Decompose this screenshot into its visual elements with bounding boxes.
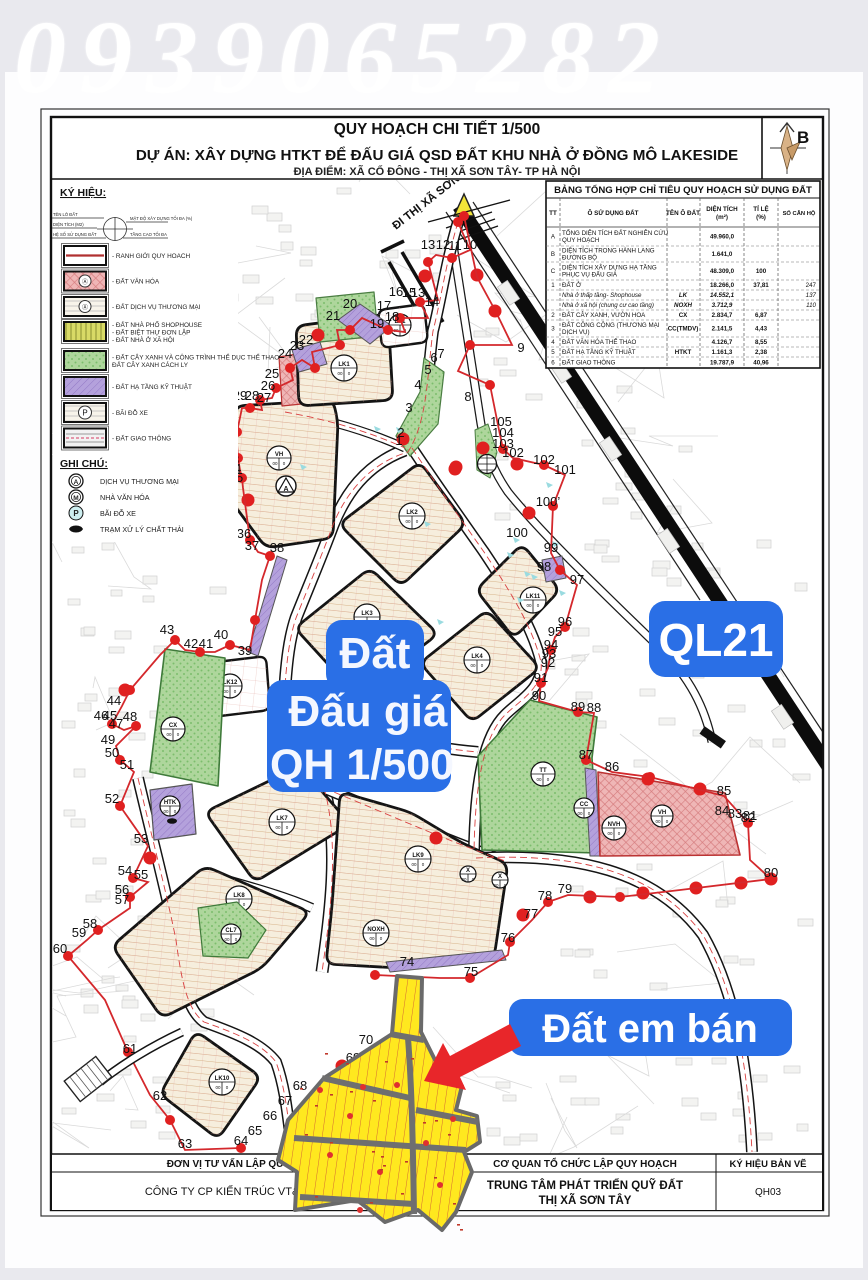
svg-text:42: 42 (184, 636, 198, 651)
svg-text:Nhà ở thấp tầng- Shophouse: Nhà ở thấp tầng- Shophouse (562, 292, 642, 299)
svg-text:00: 00 (224, 937, 230, 942)
svg-text:DIỆN TÍCH XÂY DỰNG HẠ TẦNG: DIỆN TÍCH XÂY DỰNG HẠ TẦNG (562, 264, 657, 272)
svg-text:00: 00 (215, 1085, 221, 1090)
svg-text:A: A (283, 486, 288, 493)
svg-text:CC: CC (580, 802, 589, 808)
svg-text:GHI CHÚ:: GHI CHÚ: (60, 457, 108, 470)
svg-text:90: 90 (532, 688, 546, 703)
svg-text:ĐẤT GIAO THÔNG: ĐẤT GIAO THÔNG (562, 360, 616, 367)
svg-text:99: 99 (544, 540, 558, 555)
svg-text:62: 62 (153, 1088, 167, 1103)
svg-text:SỐ CĂN HỘ: SỐ CĂN HỘ (783, 209, 816, 217)
svg-text:NHÀ VĂN HÓA: NHÀ VĂN HÓA (100, 493, 150, 502)
svg-text:84: 84 (715, 803, 729, 818)
svg-text:14: 14 (425, 294, 439, 309)
svg-text:3.712,9: 3.712,9 (712, 302, 733, 309)
svg-text:91: 91 (534, 670, 548, 685)
svg-text:DỊCH VỤ THƯƠNG MẠI: DỊCH VỤ THƯƠNG MẠI (100, 477, 179, 486)
svg-text:65: 65 (248, 1123, 262, 1138)
svg-text:BÃI ĐỖ XE: BÃI ĐỖ XE (100, 509, 136, 518)
svg-text:4: 4 (414, 377, 421, 392)
svg-text:16: 16 (389, 284, 403, 299)
svg-text:64: 64 (234, 1133, 248, 1148)
svg-text:X: X (498, 874, 502, 880)
svg-text:100’: 100’ (536, 494, 561, 509)
svg-text:41: 41 (199, 636, 213, 651)
svg-text:ĐẤT Ở: ĐẤT Ở (562, 282, 582, 289)
svg-text:00: 00 (163, 809, 169, 814)
svg-text:00: 00 (275, 825, 281, 830)
svg-text:14.552,1: 14.552,1 (710, 292, 735, 299)
svg-text:QH 1/500: QH 1/500 (270, 741, 454, 789)
svg-text:21: 21 (326, 308, 340, 323)
svg-text:ĐỊA ĐIỂM: XÃ CỔ ĐÔNG - THỊ XÃ: ĐỊA ĐIỂM: XÃ CỔ ĐÔNG - THỊ XÃ SƠN TÂY- T… (294, 165, 581, 178)
svg-text:NVH: NVH (608, 822, 621, 828)
svg-text:Đất: Đất (340, 629, 411, 678)
svg-text:TẦNG CAO TỐI ĐA: TẦNG CAO TỐI ĐA (130, 232, 167, 237)
svg-text:LK11: LK11 (526, 594, 541, 600)
svg-text:11: 11 (448, 238, 462, 253)
svg-text:6,87: 6,87 (755, 312, 768, 319)
svg-text:38: 38 (270, 540, 284, 555)
svg-text:4,43: 4,43 (755, 326, 768, 333)
svg-text:86: 86 (605, 759, 619, 774)
svg-text:ĐẤT VĂN HÓA THỂ THAO: ĐẤT VĂN HÓA THỂ THAO (562, 339, 636, 346)
svg-text:KÝ HIỆU BẢN VẼ: KÝ HIỆU BẢN VẼ (729, 1158, 806, 1170)
svg-text:55: 55 (134, 867, 148, 882)
svg-text:49.960,0: 49.960,0 (710, 234, 735, 241)
svg-text:00: 00 (272, 461, 278, 466)
svg-text:TỔNG DIỆN TÍCH ĐẤT NGHIÊN CỨU: TỔNG DIỆN TÍCH ĐẤT NGHIÊN CỨU (562, 229, 668, 237)
svg-text:00: 00 (536, 777, 542, 782)
svg-text:96: 96 (558, 614, 572, 629)
svg-text:94: 94 (544, 637, 558, 652)
svg-text:19.787,9: 19.787,9 (710, 360, 735, 367)
svg-text:2: 2 (551, 312, 555, 319)
svg-text:46: 46 (94, 708, 108, 723)
svg-text:(%): (%) (756, 214, 766, 221)
svg-text:Đấu giá: Đấu giá (289, 687, 448, 736)
svg-text:43: 43 (160, 622, 174, 637)
svg-text:DIỆN TÍCH (M2): DIỆN TÍCH (M2) (53, 222, 84, 227)
svg-text:00: 00 (223, 689, 229, 694)
svg-text:CX: CX (169, 723, 177, 729)
svg-text:1: 1 (551, 282, 555, 289)
svg-text:18.266,0: 18.266,0 (710, 282, 735, 289)
svg-text:B: B (797, 128, 809, 147)
svg-text:THỊ XÃ SƠN TÂY: THỊ XÃ SƠN TÂY (539, 1194, 632, 1207)
svg-text:VH: VH (658, 810, 666, 816)
svg-text:CC(TMDV): CC(TMDV) (668, 326, 699, 333)
svg-text:79: 79 (558, 881, 572, 896)
svg-text:76: 76 (501, 930, 515, 945)
svg-text:- BÃI ĐỖ XE: - BÃI ĐỖ XE (112, 408, 148, 417)
svg-text:00: 00 (607, 831, 613, 836)
svg-text:110: 110 (806, 302, 816, 309)
svg-text:LK7: LK7 (276, 816, 288, 822)
svg-text:TÊN LÔ ĐẤT: TÊN LÔ ĐẤT (53, 212, 78, 217)
svg-text:87: 87 (579, 747, 593, 762)
svg-text:- RANH GIỚI QUY HOACH: - RANH GIỚI QUY HOACH (112, 251, 191, 260)
svg-text:59: 59 (72, 925, 86, 940)
svg-text:DIỆN TÍCH TRONG HÀNH LANG: DIỆN TÍCH TRONG HÀNH LANG (562, 247, 655, 255)
svg-text:78: 78 (538, 888, 552, 903)
svg-text:TRUNG TÂM PHÁT TRIỂN QUỸ ĐẤT: TRUNG TÂM PHÁT TRIỂN QUỸ ĐẤT (487, 1179, 683, 1192)
svg-text:39: 39 (238, 643, 252, 658)
svg-text:HTK: HTK (164, 800, 177, 806)
svg-text:TỈ LỆ: TỈ LỆ (753, 204, 768, 213)
svg-text:51: 51 (120, 757, 134, 772)
svg-text:3: 3 (551, 326, 555, 333)
svg-text:89: 89 (571, 699, 585, 714)
svg-text:TRẠM XỬ LÝ CHẤT THẢI: TRẠM XỬ LÝ CHẤT THẢI (100, 524, 184, 534)
svg-text:LK2: LK2 (406, 510, 418, 516)
svg-text:C: C (551, 268, 556, 275)
svg-text:37,81: 37,81 (753, 282, 769, 289)
svg-text:57: 57 (115, 892, 129, 907)
svg-text:12: 12 (436, 237, 450, 252)
svg-text:10: 10 (463, 237, 477, 252)
svg-text:00: 00 (577, 811, 583, 816)
svg-text:M: M (73, 495, 78, 502)
svg-text:9: 9 (517, 340, 524, 355)
svg-text:DỰ ÁN: XÂY DỰNG HTKT ĐỂ ĐẤU GI: DỰ ÁN: XÂY DỰNG HTKT ĐỂ ĐẤU GIÁ QSD ĐẤT … (136, 146, 738, 164)
svg-text:Đất em bán: Đất em bán (542, 1007, 758, 1051)
svg-text:LK4: LK4 (471, 654, 483, 660)
svg-text:5: 5 (551, 349, 555, 356)
svg-text:QUY HOẠCH CHI TIẾT 1/500: QUY HOẠCH CHI TIẾT 1/500 (334, 121, 540, 138)
svg-text:18: 18 (385, 309, 399, 324)
svg-text:Nhà ở xã hội (chung cư cao tần: Nhà ở xã hội (chung cư cao tầng) (562, 302, 654, 309)
svg-text:ĐƯỜNG BỘ: ĐƯỜNG BỘ (562, 255, 597, 262)
svg-text:102: 102 (533, 452, 555, 467)
svg-text:37: 37 (245, 538, 259, 553)
svg-text:00: 00 (405, 519, 411, 524)
svg-text:00: 00 (655, 819, 661, 824)
svg-text:50: 50 (105, 745, 119, 760)
svg-text:B: B (551, 251, 555, 258)
svg-text:LK8: LK8 (233, 893, 245, 899)
svg-text:53: 53 (134, 831, 148, 846)
svg-text:247: 247 (806, 282, 817, 289)
svg-text:3: 3 (405, 400, 412, 415)
svg-text:TT: TT (549, 210, 557, 217)
svg-text:DỊCH VỤ): DỊCH VỤ) (562, 329, 590, 336)
svg-text:19: 19 (370, 316, 384, 331)
svg-text:X: X (466, 868, 470, 874)
svg-text:CƠ QUAN TỔ CHỨC LẬP QUY HOẠCH: CƠ QUAN TỔ CHỨC LẬP QUY HOẠCH (493, 1157, 677, 1170)
svg-text:NOXH: NOXH (674, 302, 692, 309)
svg-text:HTKT: HTKT (675, 349, 692, 356)
svg-text:82: 82 (741, 810, 755, 825)
svg-text:2.141,5: 2.141,5 (712, 326, 733, 333)
svg-text:75: 75 (464, 964, 478, 979)
svg-text:48: 48 (123, 709, 137, 724)
svg-text:00: 00 (411, 862, 417, 867)
svg-text:48.309,0: 48.309,0 (710, 268, 735, 275)
svg-text:52: 52 (105, 791, 119, 806)
svg-text:ĐẤT HẠ TẦNG KỸ THUẬT: ĐẤT HẠ TẦNG KỸ THUẬT (562, 349, 636, 356)
svg-text:ĐẤT CÔNG CỘNG (THƯƠNG MẠI: ĐẤT CÔNG CỘNG (THƯƠNG MẠI (562, 322, 660, 329)
svg-text:83: 83 (728, 806, 742, 821)
svg-text:00: 00 (166, 732, 172, 737)
svg-text:98: 98 (537, 559, 551, 574)
svg-text:PHỤC VỤ ĐẤU GIÁ: PHỤC VỤ ĐẤU GIÁ (562, 272, 618, 279)
svg-text:HỆ SỐ SỬ DỤNG ĐẤT: HỆ SỐ SỬ DỤNG ĐẤT (53, 232, 97, 237)
svg-text:LK: LK (679, 292, 688, 299)
svg-text:77: 77 (524, 906, 538, 921)
svg-text:00: 00 (470, 663, 476, 668)
svg-text:DIỆN TÍCH: DIỆN TÍCH (706, 204, 738, 213)
svg-text:KÝ HIỆU:: KÝ HIỆU: (60, 186, 106, 199)
svg-text:QH03: QH03 (755, 1187, 782, 1198)
svg-text:105: 105 (490, 414, 512, 429)
svg-text:101: 101 (554, 462, 576, 477)
svg-text:40: 40 (214, 627, 228, 642)
svg-text:70: 70 (359, 1032, 373, 1047)
svg-text:137: 137 (806, 292, 817, 299)
svg-text:LK3: LK3 (361, 611, 373, 617)
svg-text:68: 68 (293, 1078, 307, 1093)
svg-text:00: 00 (337, 371, 343, 376)
svg-text:1.641,0: 1.641,0 (712, 251, 733, 258)
svg-text:Ⓐ: Ⓐ (82, 278, 88, 286)
svg-text:MẬT ĐỘ XÂY DỰNG TỐI ĐA (%): MẬT ĐỘ XÂY DỰNG TỐI ĐA (%) (130, 216, 193, 221)
svg-text:1.161,3: 1.161,3 (712, 349, 733, 356)
svg-text:CL7: CL7 (225, 928, 237, 934)
svg-text:6: 6 (551, 360, 555, 367)
svg-text:8,55: 8,55 (755, 339, 768, 346)
svg-text:60: 60 (53, 941, 67, 956)
svg-text:4.126,7: 4.126,7 (712, 339, 733, 346)
svg-text:100: 100 (756, 268, 767, 275)
svg-text:7: 7 (437, 346, 444, 361)
svg-text:2.834,7: 2.834,7 (712, 312, 733, 319)
svg-text:54: 54 (118, 863, 132, 878)
svg-text:97: 97 (570, 572, 584, 587)
svg-text:00: 00 (493, 883, 499, 888)
svg-text:20: 20 (343, 296, 357, 311)
svg-text:NOXH: NOXH (367, 927, 384, 933)
svg-text:QL21: QL21 (658, 614, 773, 666)
svg-text:BẢNG TỔNG HỢP CHỈ TIÊU QUY HOẠ: BẢNG TỔNG HỢP CHỈ TIÊU QUY HOẠCH SỬ DỤNG… (554, 184, 812, 196)
svg-text:CX: CX (679, 312, 688, 319)
svg-text:24: 24 (278, 346, 292, 361)
svg-text:80: 80 (764, 865, 778, 880)
svg-text:TT: TT (539, 768, 547, 774)
svg-text:44: 44 (107, 693, 121, 708)
svg-text:ĐẤT CÂY XANH, VƯỜN HOA: ĐẤT CÂY XANH, VƯỜN HOA (562, 312, 646, 319)
svg-text:15: 15 (402, 285, 416, 300)
svg-text:4: 4 (551, 339, 555, 346)
svg-text:00: 00 (461, 877, 467, 882)
svg-text:(m²): (m²) (716, 214, 728, 221)
svg-text:100: 100 (506, 525, 528, 540)
svg-text:00: 00 (369, 936, 375, 941)
svg-text:A: A (74, 479, 79, 486)
svg-text:40,96: 40,96 (753, 360, 769, 367)
svg-text:8: 8 (464, 389, 471, 404)
svg-text:00: 00 (526, 603, 532, 608)
svg-text:13: 13 (421, 237, 435, 252)
svg-text:66: 66 (263, 1108, 277, 1123)
svg-text:P: P (82, 409, 87, 418)
svg-text:QUY HOẠCH: QUY HOẠCH (562, 237, 599, 244)
svg-text:63: 63 (178, 1136, 192, 1151)
svg-text:LK12: LK12 (223, 680, 238, 686)
svg-text:2: 2 (397, 425, 404, 440)
svg-text:LK9: LK9 (412, 853, 424, 859)
svg-text:VH: VH (275, 452, 283, 458)
svg-text:47: 47 (109, 716, 123, 731)
svg-text:LK1: LK1 (338, 362, 350, 368)
svg-text:P: P (73, 509, 79, 518)
svg-text:2,38: 2,38 (755, 349, 768, 356)
svg-text:67: 67 (278, 1093, 292, 1108)
svg-text:85: 85 (717, 783, 731, 798)
svg-text:74: 74 (400, 954, 414, 969)
svg-text:Ⓐ: Ⓐ (82, 304, 88, 312)
svg-text:LK10: LK10 (215, 1076, 230, 1082)
svg-text:88: 88 (587, 700, 601, 715)
